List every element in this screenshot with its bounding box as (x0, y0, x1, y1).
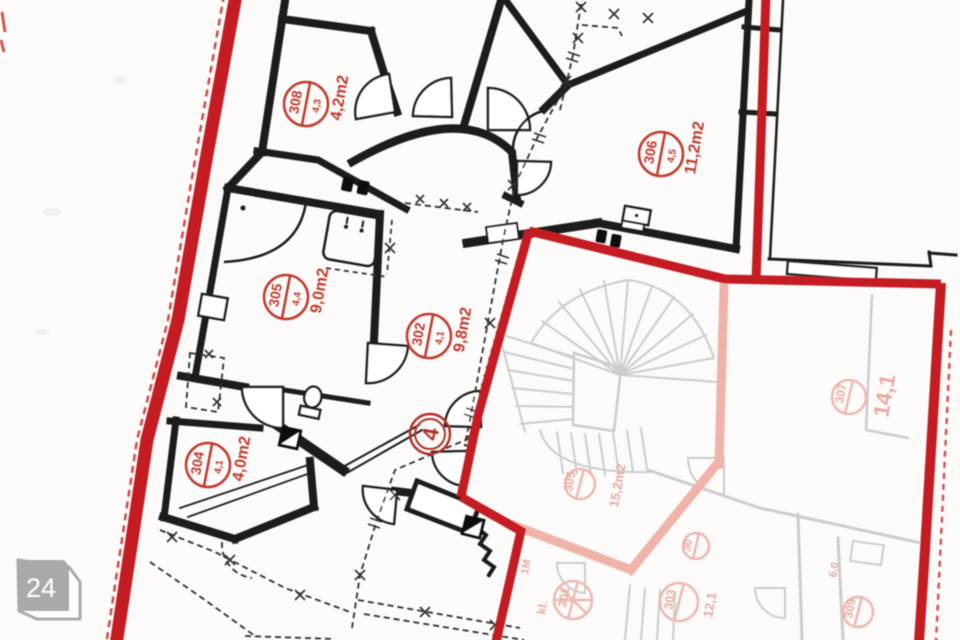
svg-text:24: 24 (26, 573, 56, 603)
svg-text:kl.: kl. (534, 600, 550, 616)
svg-text:30: 30 (681, 538, 695, 552)
